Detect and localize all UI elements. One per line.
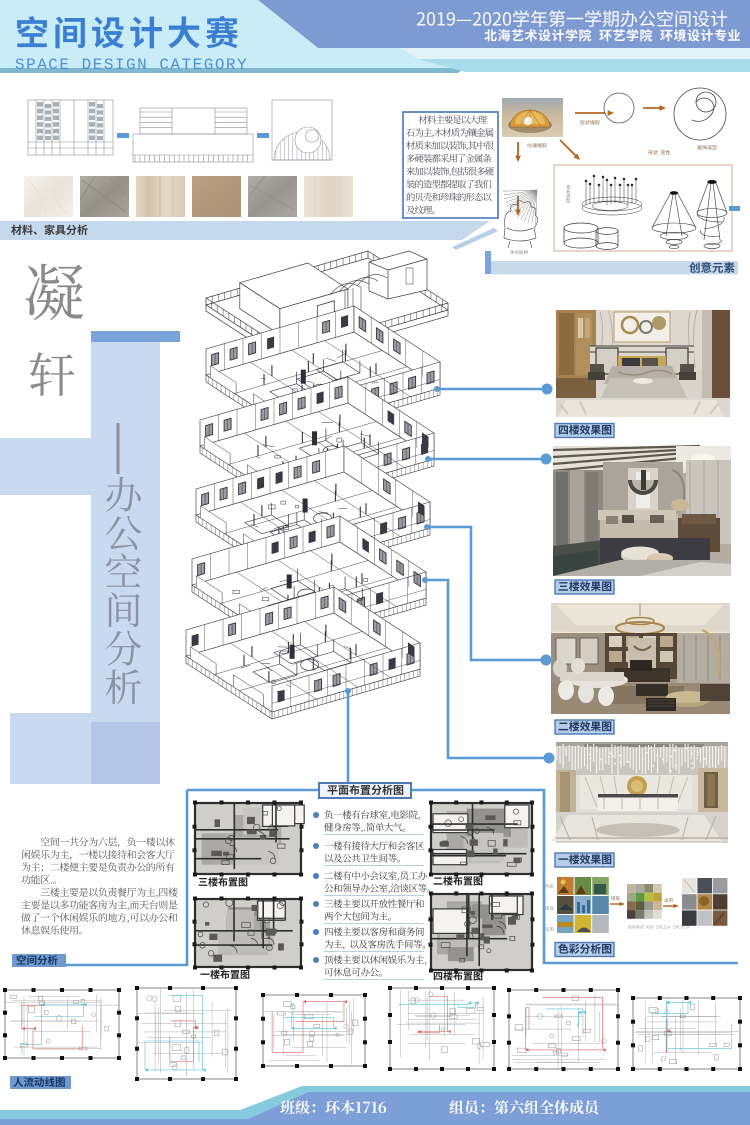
svg-text:SPACE DESIGN CATEGORY: SPACE DESIGN CATEGORY: [15, 56, 248, 74]
